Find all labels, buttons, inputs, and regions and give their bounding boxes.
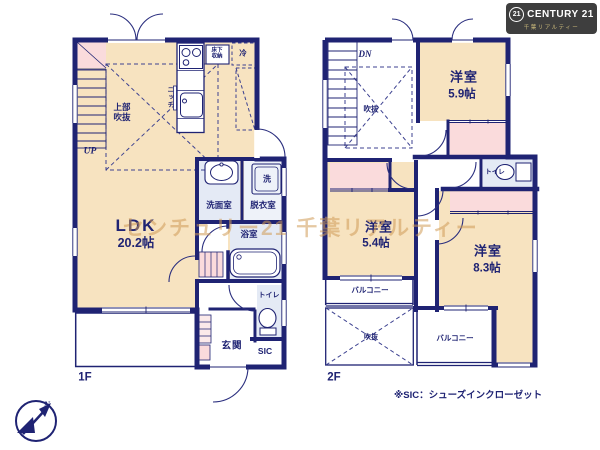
floor-2f-plan xyxy=(322,19,538,368)
bath-step-stripes xyxy=(199,252,223,277)
bathtub-icon xyxy=(230,249,280,277)
floor2-label: 2F xyxy=(327,371,340,384)
refrigerator-label: 冷 xyxy=(239,50,247,59)
underfloor-storage-label: 床下収納 xyxy=(211,48,224,61)
watermark-text: センチュリー21 千葉リアルティー xyxy=(123,212,479,242)
toilet-2f-label: トイレ xyxy=(485,168,505,175)
room83-name-label: 洋室 xyxy=(474,245,502,260)
sic-footnote: ※SIC：シューズインクローゼット xyxy=(394,387,542,401)
toilet-1f-label: トイレ xyxy=(259,292,280,300)
dressing-room-label: 脱衣室 xyxy=(250,201,276,211)
century21-circle-icon: 21 xyxy=(509,7,524,22)
washroom-label: 洗面室 xyxy=(206,201,232,211)
niche-shelf xyxy=(174,86,177,110)
stairs-dn-label: DN xyxy=(359,49,372,59)
washbasin-icon xyxy=(205,161,238,184)
room59-name-label: 洋室 xyxy=(450,71,478,86)
niche-label: ニッチ xyxy=(165,86,172,109)
void-upper-label: 吹抜 xyxy=(364,106,379,115)
compass-north-label: N xyxy=(44,400,50,410)
balcony-b-label: バルコニー xyxy=(436,335,473,344)
closet-54 xyxy=(330,163,390,190)
sic-label: SIC xyxy=(258,347,272,357)
room83-size-label: 8.3帖 xyxy=(473,262,501,275)
open-ceiling-label: 上部吹抜 xyxy=(112,103,132,123)
balcony-a-label: バルコニー xyxy=(351,287,388,296)
stairs-up-label: UP xyxy=(84,147,97,158)
sink-icon xyxy=(181,93,203,117)
stairs-2f xyxy=(328,42,357,145)
void-lower-label: 吹抜 xyxy=(364,334,378,342)
room59-size-label: 5.9帖 xyxy=(448,88,476,101)
deck xyxy=(76,313,197,367)
toilet-icon-1f xyxy=(259,309,276,336)
entrance-step-stripes xyxy=(198,315,211,360)
floorplan-canvas: LDK 20.2帖 上部吹抜 ニッチ 床下収納 冷 洗面室 脱衣室 洗 浴室 ト… xyxy=(0,0,600,450)
floor1-label: 1F xyxy=(78,371,91,384)
washer-label: 洗 xyxy=(263,174,271,183)
closet-59 xyxy=(449,123,506,157)
closet-83 xyxy=(450,192,533,213)
century21-subtitle: 千葉リアルティー xyxy=(524,23,580,31)
century21-logo: 21 CENTURY 21 千葉リアルティー xyxy=(506,3,597,34)
entrance-label: 玄関 xyxy=(221,342,242,353)
century21-name: CENTURY 21 xyxy=(527,9,594,20)
kitchen-counter xyxy=(174,43,205,133)
